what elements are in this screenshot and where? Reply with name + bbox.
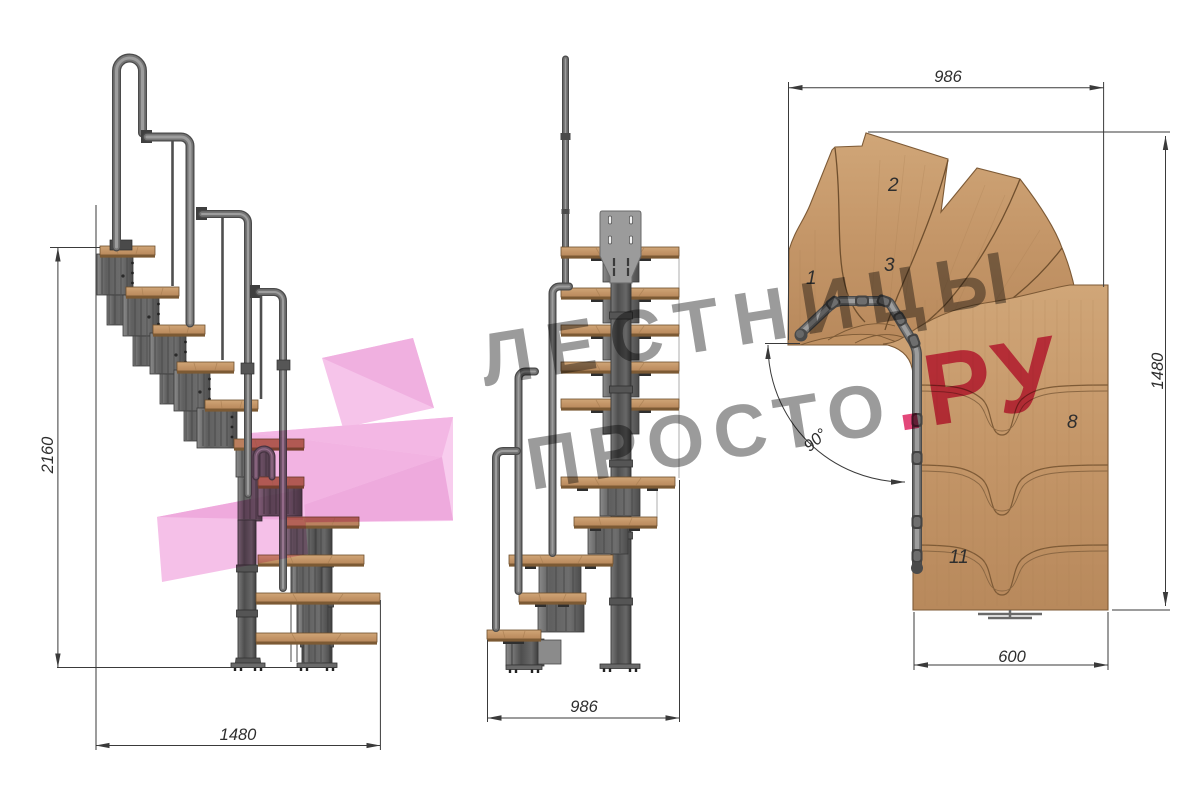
svg-text:1480: 1480 <box>220 726 258 744</box>
svg-text:986: 986 <box>934 68 962 86</box>
svg-text:2: 2 <box>887 175 899 196</box>
svg-text:986: 986 <box>570 698 598 716</box>
svg-text:2160: 2160 <box>39 436 57 475</box>
svg-text:600: 600 <box>998 648 1026 666</box>
svg-text:11: 11 <box>949 547 969 568</box>
svg-text:1480: 1480 <box>1149 352 1167 390</box>
